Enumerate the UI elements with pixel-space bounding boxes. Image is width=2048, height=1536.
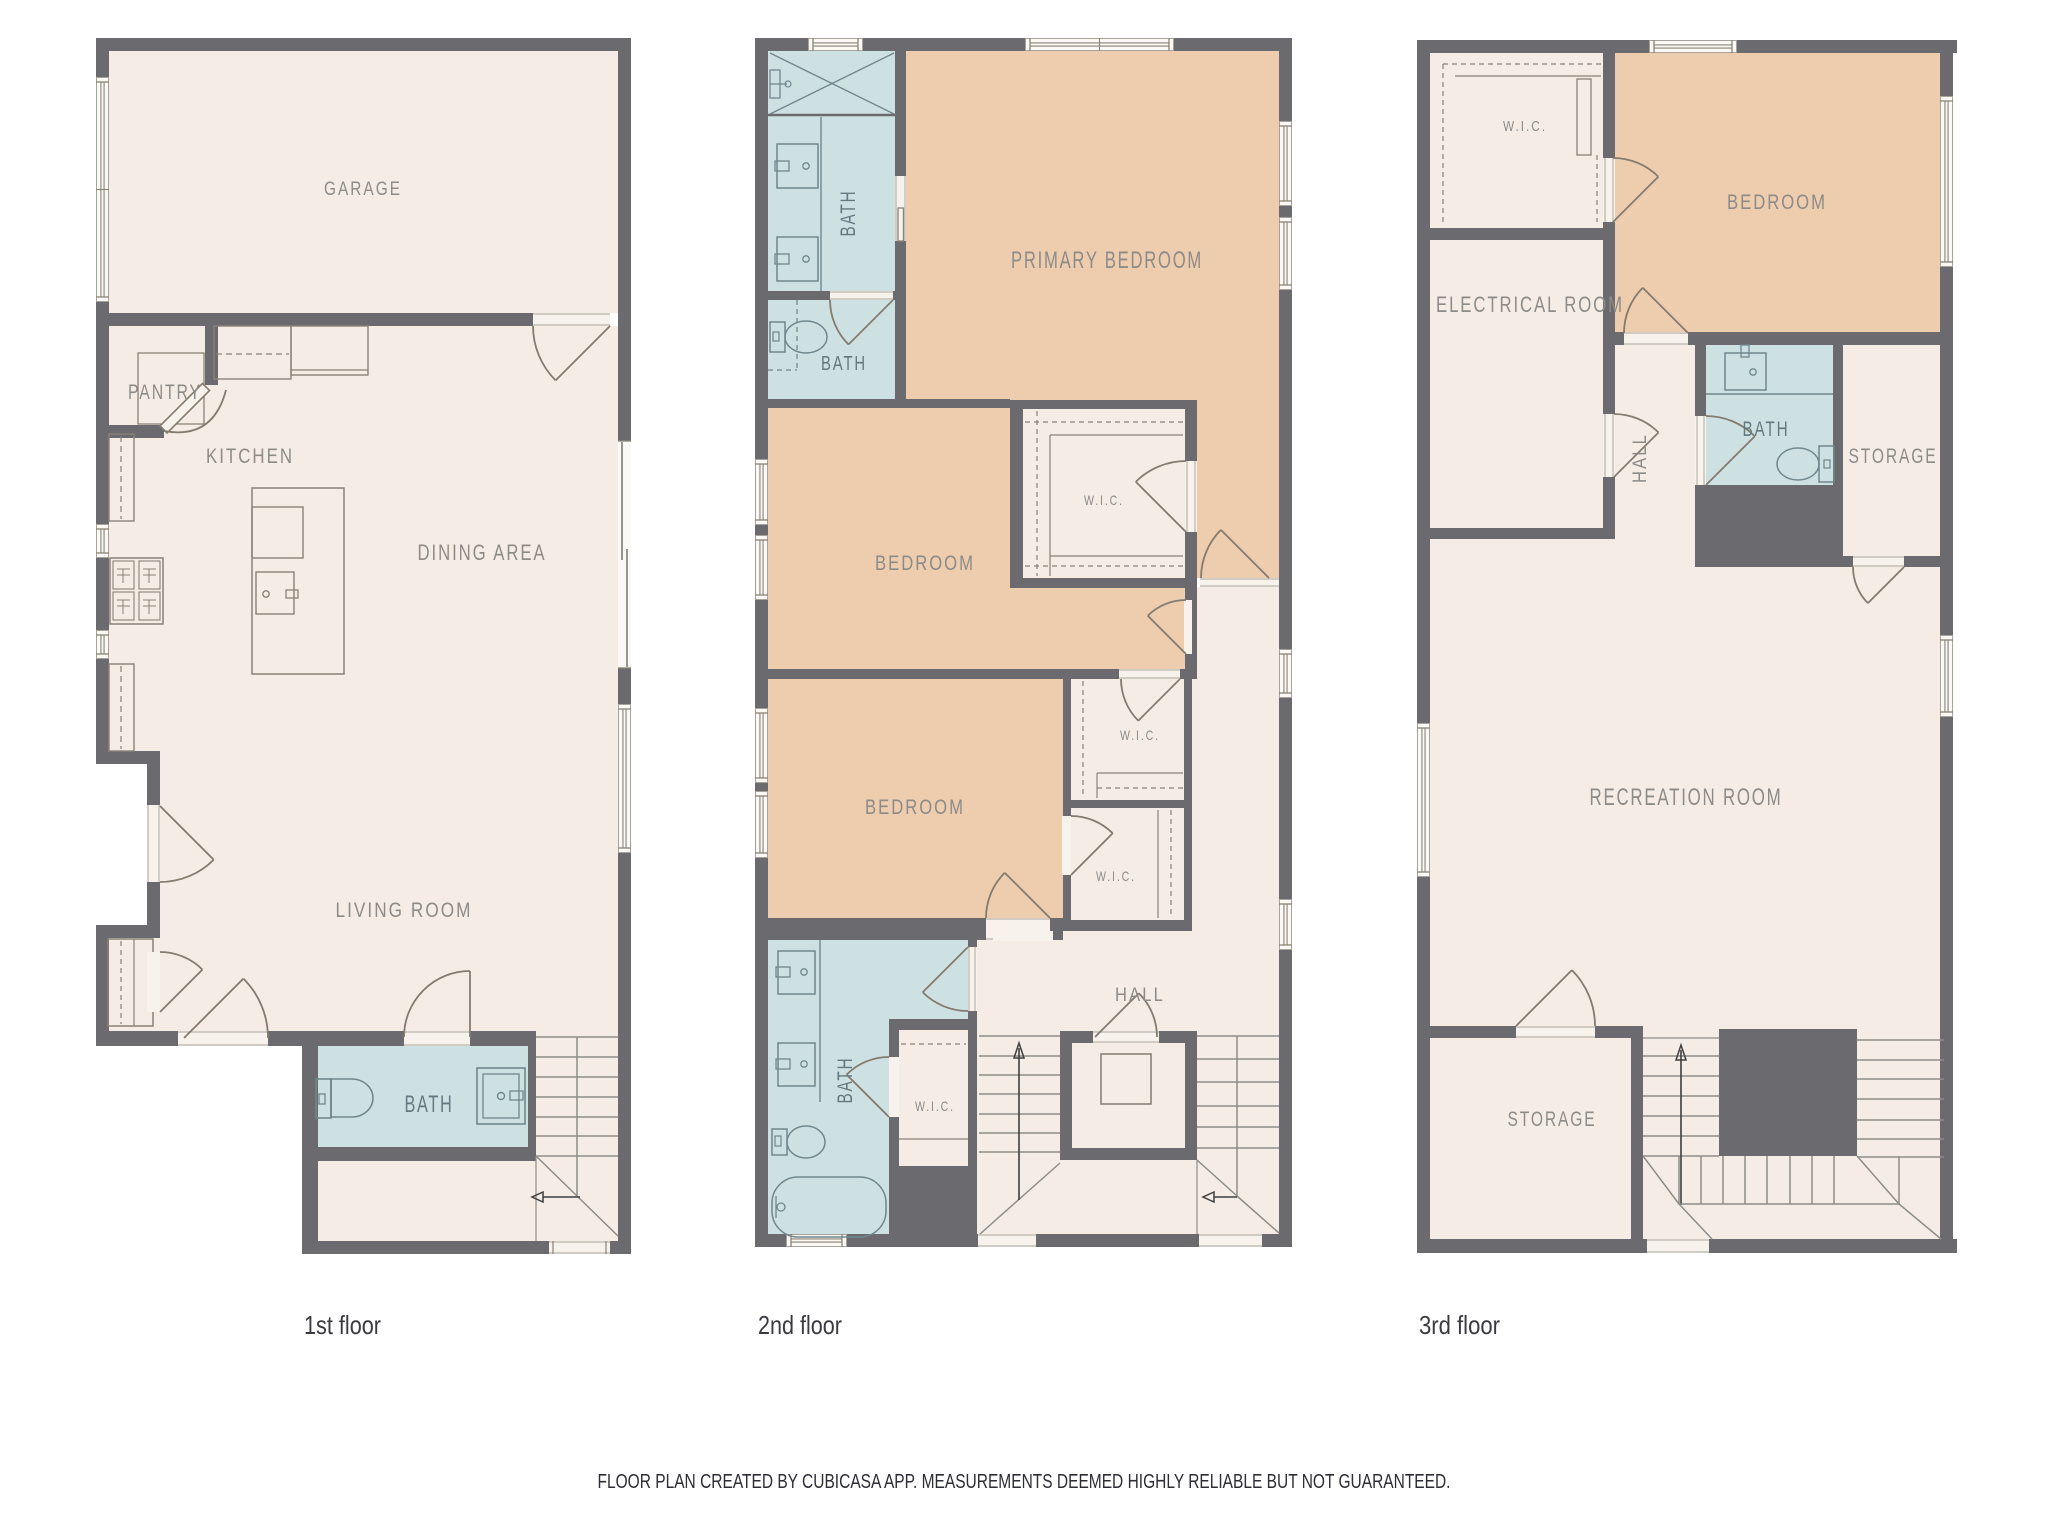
svg-text:W.I.C.: W.I.C. [1120, 727, 1160, 743]
svg-text:STORAGE: STORAGE [1508, 1108, 1597, 1131]
svg-text:FLOOR PLAN CREATED BY CUBICASA: FLOOR PLAN CREATED BY CUBICASA APP. MEAS… [598, 1471, 1451, 1493]
svg-text:GARAGE: GARAGE [324, 179, 402, 200]
svg-text:3rd floor: 3rd floor [1419, 1310, 1500, 1340]
svg-text:BATH: BATH [837, 190, 860, 237]
svg-text:BATH: BATH [834, 1057, 857, 1104]
svg-text:PANTRY: PANTRY [128, 381, 202, 404]
svg-text:STORAGE: STORAGE [1849, 445, 1938, 468]
svg-text:LIVING ROOM: LIVING ROOM [336, 899, 473, 922]
svg-text:HALL: HALL [1115, 985, 1165, 1006]
svg-text:ELECTRICAL ROOM: ELECTRICAL ROOM [1436, 292, 1624, 317]
svg-text:2nd floor: 2nd floor [758, 1310, 842, 1340]
svg-text:W.I.C.: W.I.C. [915, 1098, 955, 1114]
svg-text:BEDROOM: BEDROOM [865, 796, 965, 819]
svg-text:BATH: BATH [405, 1091, 454, 1118]
svg-text:HALL: HALL [1630, 433, 1651, 483]
svg-text:W.I.C.: W.I.C. [1503, 118, 1547, 135]
svg-text:W.I.C.: W.I.C. [1084, 492, 1124, 508]
svg-text:BEDROOM: BEDROOM [875, 552, 975, 575]
svg-text:KITCHEN: KITCHEN [206, 445, 294, 468]
svg-text:BEDROOM: BEDROOM [1727, 191, 1827, 214]
svg-text:BATH: BATH [821, 353, 867, 375]
svg-text:1st floor: 1st floor [304, 1310, 381, 1340]
svg-text:RECREATION ROOM: RECREATION ROOM [1590, 784, 1783, 811]
svg-text:BATH: BATH [1743, 418, 1790, 441]
svg-text:W.I.C.: W.I.C. [1096, 868, 1136, 884]
svg-text:DINING AREA: DINING AREA [418, 540, 547, 565]
svg-text:PRIMARY BEDROOM: PRIMARY BEDROOM [1011, 247, 1203, 274]
